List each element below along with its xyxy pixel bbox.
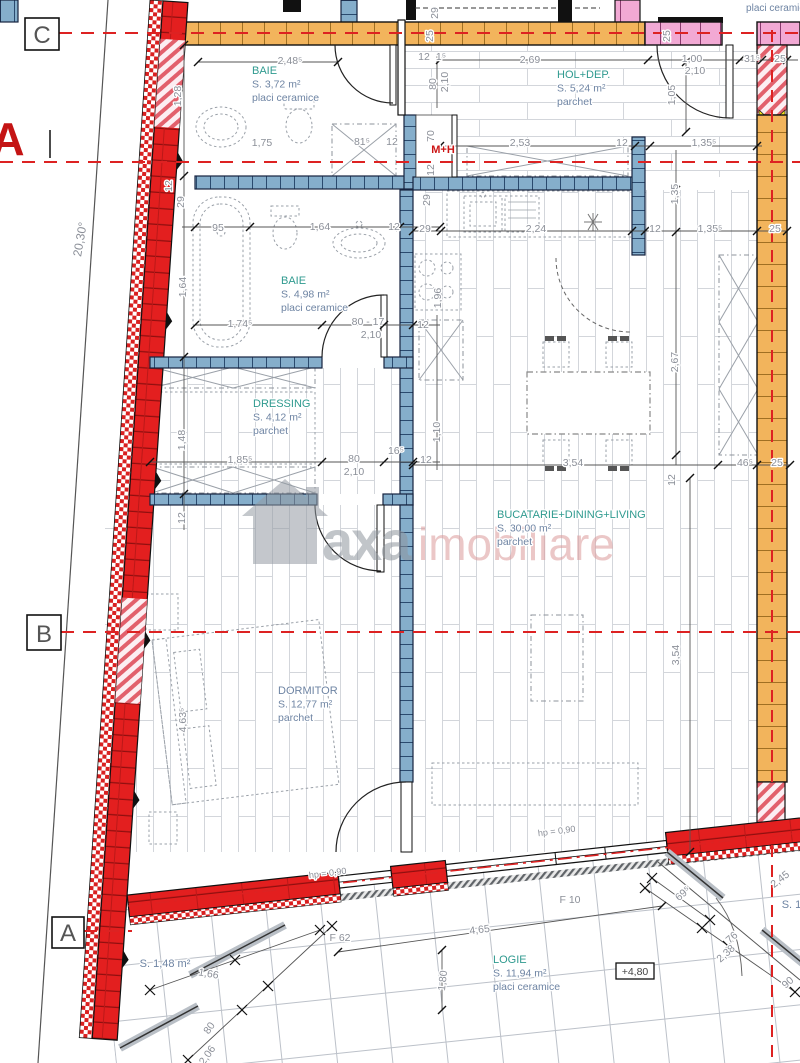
- dimension-label: 2,48⁵: [278, 55, 303, 67]
- room-finish-label: placi ceramice: [493, 981, 560, 993]
- dimension-label: 80: [427, 78, 439, 90]
- room-name-label: DORMITOR: [278, 685, 338, 697]
- dimension-label: 12: [666, 474, 678, 486]
- dimension-label: 80: [348, 453, 360, 465]
- dimension-label: 3,54: [670, 645, 682, 666]
- floor-plan-page: axa imobiliare C B A A +4,80 2,48⁵1,7581…: [0, 0, 800, 1063]
- dimension-label: 12: [420, 454, 432, 466]
- dimension-label: 4,63⁵: [177, 708, 189, 733]
- room-name-label: BAIE: [252, 65, 277, 77]
- dimension-label: 12: [176, 512, 188, 524]
- dimension-label: 25: [769, 223, 781, 235]
- room-finish-label: placi ceramice: [281, 302, 348, 314]
- grid-marker-a-label: A: [60, 920, 76, 947]
- dimension-label: 2,24: [526, 223, 547, 235]
- room-finish-label: parchet: [557, 96, 592, 108]
- dimension-label: 1,96: [432, 288, 444, 309]
- room-area-label: S. 12,77 m²: [278, 699, 333, 711]
- dimension-label: 2,10: [685, 65, 706, 77]
- room-name-label: BUCATARIE+DINING+LIVING: [497, 509, 646, 521]
- dimension-label: 2,53: [510, 137, 531, 149]
- dimension-label: 1,64: [177, 277, 189, 298]
- dimension-label: 2,67: [669, 352, 681, 373]
- dimension-label: 70: [425, 130, 437, 142]
- dimension-label: 25: [661, 30, 673, 42]
- room-finish-label: parchet: [497, 536, 532, 548]
- room-area-label: S. 5,24 m²: [557, 83, 606, 95]
- dimension-label: S. 1,48 m²: [140, 958, 191, 970]
- dimension-label: 12: [418, 51, 430, 63]
- grid-marker-b-label: B: [36, 621, 52, 648]
- dimension-label: 1,48: [176, 430, 188, 451]
- watermark-brand: axa: [322, 509, 412, 572]
- dimension-label: 4,65: [469, 923, 491, 937]
- dimension-label: 2,10: [344, 466, 365, 478]
- dimension-label: 3,54: [563, 457, 584, 469]
- dimension-label: 25: [771, 457, 783, 469]
- dimension-label: 25: [424, 30, 436, 42]
- dimension-label: 1,85⁵: [228, 454, 253, 466]
- dimension-label: 25: [774, 53, 786, 65]
- door-leaf: [726, 45, 733, 118]
- dimension-label: 12: [163, 180, 175, 192]
- dimension-label: 80 - 17: [352, 316, 385, 328]
- dimension-label: 1,80: [436, 970, 450, 992]
- room-name-label: LOGIE: [493, 954, 527, 966]
- level-marker-label: +4,80: [622, 966, 649, 978]
- dimension-label: 1,00: [682, 53, 703, 65]
- room-area-label: S. 4,98 m²: [281, 289, 330, 301]
- dimension-label: placi ceramice: [746, 3, 800, 14]
- dimension-label: 1⁵: [436, 51, 446, 63]
- dimension-label: 31⁵: [744, 53, 760, 65]
- floor-plan-drawing: axa imobiliare C B A A +4,80 2,48⁵1,7581…: [0, 0, 800, 1063]
- room-name-label: BAIE: [281, 275, 306, 287]
- room-area-label: S. 11,94 m²: [493, 968, 547, 980]
- dimension-label: 81⁵: [354, 136, 370, 148]
- dimension-label: 1,64: [310, 221, 331, 233]
- door-leaf: [390, 45, 396, 105]
- dimension-label: 46⁵: [737, 457, 753, 469]
- room-area-label: S. 3,72 m²: [252, 79, 301, 91]
- dimension-label: 1,35⁵: [698, 223, 723, 235]
- dimension-label: S. 1,: [782, 899, 800, 911]
- room-name-label: DRESSING: [253, 398, 310, 410]
- dimension-label: 12: [388, 221, 400, 233]
- dimension-label: 2,10: [439, 72, 451, 93]
- dimension-label: 1,10: [431, 422, 443, 443]
- dimension-label: 1,75: [252, 137, 273, 149]
- room-area-label: S. 30,00 m²: [497, 523, 552, 535]
- dimension-label: 12: [425, 164, 437, 176]
- room-name-label: HOL+DEP.: [557, 69, 610, 81]
- dimension-label: 1,28: [172, 86, 184, 107]
- dimension-label: F 62: [329, 932, 350, 944]
- dimension-label: 16⁵: [388, 445, 404, 457]
- dimension-label: 12: [386, 136, 398, 148]
- dimension-label: 12: [417, 319, 429, 331]
- dimension-label: M+H: [431, 144, 455, 156]
- room-finish-label: parchet: [278, 712, 313, 724]
- dimension-label: 12: [616, 137, 628, 149]
- dimension-label: 1,74⁵: [228, 318, 253, 330]
- dimension-label: 1,35⁵: [692, 137, 717, 149]
- dimension-label: 1,05: [666, 85, 678, 106]
- dimension-label: 29: [419, 223, 431, 235]
- dimension-label: 29: [429, 7, 441, 19]
- dimension-label: 1,35: [669, 184, 681, 205]
- grid-marker-c-label: C: [33, 22, 50, 49]
- dimension-label: 29: [175, 196, 187, 208]
- dimension-label: 2,10: [361, 329, 382, 341]
- section-marker-letter: A: [0, 113, 25, 165]
- dimension-label: F 10: [559, 894, 580, 906]
- dimension-label: 2,69: [520, 54, 541, 66]
- dimension-label: 95: [212, 222, 224, 234]
- door-leaf: [401, 782, 412, 852]
- dimension-label: 29: [421, 194, 433, 206]
- room-area-label: S. 4,12 m²: [253, 412, 302, 424]
- room-finish-label: placi ceramice: [252, 92, 319, 104]
- dimension-label: 12: [649, 223, 661, 235]
- room-finish-label: parchet: [253, 425, 288, 437]
